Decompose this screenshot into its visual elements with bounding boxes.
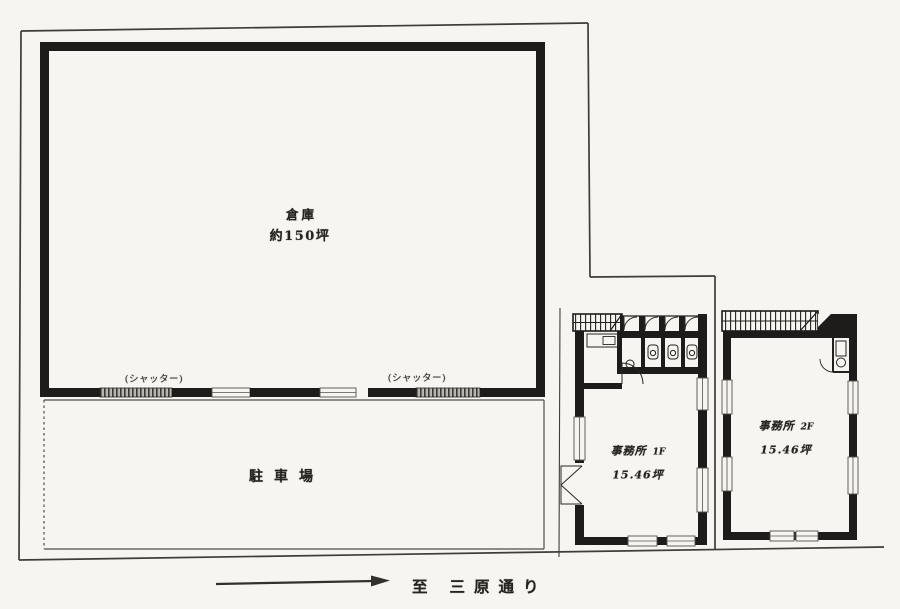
warehouse-name: 倉庫	[270, 204, 331, 223]
o2f-wall-left	[723, 331, 731, 540]
wall-stub	[639, 316, 645, 333]
window	[667, 536, 695, 546]
toilet-icon	[648, 345, 697, 359]
wall-segment	[480, 388, 545, 397]
boundary-step-line	[590, 276, 715, 277]
boundary-top-line	[21, 23, 588, 31]
window	[796, 531, 818, 541]
o1f-toilet-block	[620, 316, 707, 374]
shutter-segment-right	[416, 388, 480, 397]
office-1f-area: 15.46坪	[611, 467, 666, 483]
sink-counter-icon	[587, 334, 618, 347]
warehouse-wall-top	[40, 42, 545, 51]
floor-plan-page: 倉庫 約150坪 駐車場 (シャッター) (シャッター) 事務所1F 15.46…	[0, 0, 900, 609]
staircase-2f	[722, 311, 818, 331]
boundary-left-line	[19, 31, 21, 560]
o1f-band-wall	[622, 331, 707, 338]
o2f-toilet	[820, 338, 849, 372]
window	[697, 468, 708, 512]
warehouse-wall-right	[536, 42, 545, 397]
staircase-1f	[573, 314, 622, 331]
office-2f-floor: 2F	[801, 423, 814, 433]
o2f-wall-right	[849, 331, 857, 540]
boundary-right-upper-line	[588, 23, 590, 277]
office-2f-label: 事務所2F 15.46坪	[759, 415, 814, 458]
warehouse-window	[212, 388, 250, 397]
office-1f-floor: 1F	[653, 448, 666, 458]
window	[770, 531, 794, 541]
window	[697, 378, 708, 410]
street-name: 三原通り	[450, 577, 548, 596]
sink-basin-icon	[603, 337, 615, 345]
wall-segment	[172, 388, 212, 397]
street-to: 至	[412, 577, 428, 596]
window	[574, 417, 585, 460]
shutter-label-right: (シャッター)	[388, 370, 446, 384]
window	[848, 457, 858, 494]
wall-stub	[679, 316, 685, 333]
warehouse-wall-bottom	[40, 388, 545, 397]
office-1f-building	[561, 314, 708, 546]
window	[628, 536, 657, 546]
wall-segment	[250, 388, 320, 397]
street-label: 至三原通り	[412, 575, 548, 597]
warehouse-label: 倉庫 約150坪	[270, 204, 331, 244]
wall-stub	[659, 316, 665, 333]
wall-segment	[368, 388, 416, 397]
window	[848, 381, 858, 414]
warehouse-window	[320, 388, 356, 397]
site-plan-drawing	[0, 0, 900, 609]
parking-label: 駐車場	[238, 466, 324, 486]
double-door-icon	[561, 463, 585, 505]
arrowhead-icon	[371, 576, 390, 587]
warehouse-area: 約150坪	[270, 225, 331, 244]
shutter-segment-left	[100, 388, 172, 397]
o1f-kitchenette	[584, 331, 643, 389]
office-2f-title: 事務所2F	[759, 415, 814, 434]
office-2f-name: 事務所	[759, 420, 795, 433]
office-1f-name: 事務所	[611, 445, 647, 458]
street-direction-arrow	[216, 576, 390, 587]
o1f-room-bottom-wall	[584, 383, 622, 389]
o2f-wall-top	[723, 331, 857, 338]
o1f-toilet-bottom-wall	[622, 367, 707, 374]
wall-segment	[40, 388, 100, 397]
shutter-label-left: (シャッター)	[125, 371, 183, 385]
site-boundary	[19, 23, 884, 560]
window	[722, 380, 732, 414]
office-1f-title: 事務所1F	[611, 440, 666, 459]
wall-stub	[620, 316, 624, 333]
window	[722, 457, 732, 491]
office-2f-area: 15.46坪	[759, 442, 814, 458]
parcel-divider-line	[559, 308, 560, 557]
door-arc-icon	[820, 359, 833, 372]
office-1f-label: 事務所1F 15.46坪	[611, 440, 666, 483]
warehouse-wall-left	[40, 42, 49, 397]
o2f-windows	[722, 380, 858, 541]
